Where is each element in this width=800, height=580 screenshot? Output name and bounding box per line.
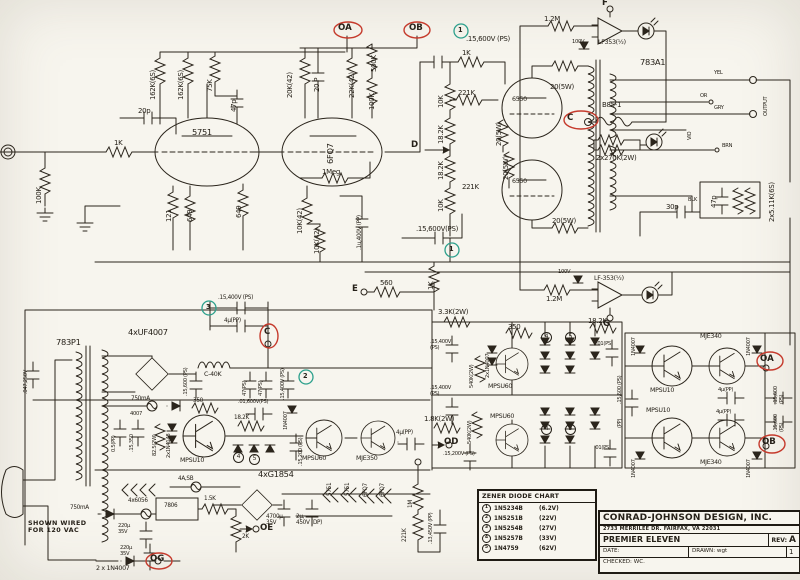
schematic-linework (0, 0, 800, 580)
cap-15-400-label: .15,400V (PS) (430, 340, 451, 351)
tap-brn-label: BRN (722, 144, 732, 150)
cap-220u-label: 220μ 35V (118, 524, 130, 535)
tap-yel-label: YEL (714, 71, 722, 77)
green-ref-circles (202, 24, 468, 384)
coupling-cap-label: .15,600V (PS) (466, 36, 510, 44)
cap-4700u-label: 4700μ 35V (266, 514, 283, 526)
zener-chart-row: 5 1N4759 (62V) (479, 543, 595, 553)
resistor-162k-label: 162K(6S) (150, 70, 158, 100)
resistor-1.2m-label: 1.2M (546, 296, 562, 304)
cap-01-label: .01(PS) (594, 446, 611, 452)
cap-20p-label: 20 P (314, 78, 322, 92)
resistor-221k-label: 221K (462, 184, 479, 192)
resistor-18.2k-label: 18.2K (438, 125, 446, 144)
transistor-mpsu60-label: MPSU60 (302, 456, 326, 463)
drawn-cell: DRAWN: wgt (688, 547, 786, 557)
zener-chart-row: 2 1N5251B (22V) (479, 513, 595, 523)
zener-ref-5: 5 (565, 424, 576, 435)
transistor-mpsu10-label: MPSU10 (646, 408, 670, 415)
resistor-1.5k-label: 1.5K (204, 496, 216, 502)
transistor-mje340-label: MJE340 (700, 334, 722, 341)
cap-4u-label: 4μ(PP) (716, 410, 731, 416)
diode-1n4007-label: 1N4007 (284, 411, 290, 430)
resistor-10k-label: 10K(42) (297, 208, 305, 234)
cap-15-600-label: .15,600 (PS) (774, 414, 785, 432)
cap-15-400-label: .15,400V (PS) (281, 368, 287, 400)
diode-1n4007-label: 1N4007 (632, 459, 638, 478)
transistor-mpsu10-label: MPSU10 (180, 458, 204, 465)
zener-ref-5: 5 (565, 332, 576, 343)
cap-05-label: 0.5(PP) (112, 436, 118, 452)
cap-47-label: 47(PS) (259, 381, 265, 396)
resistor-18.2k-label: 18.2K (438, 161, 446, 180)
resistor-82.5-label: 82.5(2W) (153, 434, 159, 456)
resistor-20-5w-label: 20(5W) (496, 122, 504, 146)
zener-voltage: (33V) (539, 536, 557, 542)
resistor-20-5w-label: 20(5W) (552, 218, 576, 226)
resistor-22k-label: 22K(42) (349, 72, 357, 98)
terminal-e: E (352, 285, 358, 294)
zener-ref-icon: 5 (482, 544, 491, 553)
diode-4007-label: 4007 (130, 412, 142, 418)
lamp-b85-1-label: B85-1 (602, 102, 621, 110)
servo-circuit (361, 6, 672, 321)
tap-or-label: OR (700, 94, 707, 100)
tube-6550-label: 6550 (512, 179, 527, 186)
model-name: PREMIER ELEVEN (600, 534, 768, 546)
zener-chart-row: 4 1N5257B (33V) (479, 533, 595, 543)
cap-2u-label: 2μ, 450V (DP) (296, 514, 322, 526)
cap-47p-label: 47p (231, 100, 239, 112)
transistor-mpsu10-label: MPSU10 (650, 388, 674, 395)
zener-ref-icon: 3 (482, 524, 491, 533)
resistor-100k-label: 100K (36, 187, 44, 204)
fuse-750ma-label: 750mA (70, 505, 89, 511)
cap-4u-label: 4μ(PP) (224, 318, 241, 324)
diode-4148-label: 2x1N4148 (167, 434, 173, 458)
zener-chart-row: 1 1N5234B (6.2V) (479, 503, 595, 513)
checked-value: WC. (634, 559, 645, 565)
zener-chart-title: ZENER DIODE CHART (479, 491, 595, 503)
terminal-a-top: OA (338, 24, 352, 33)
resistor-75k-label: 75K (207, 79, 215, 92)
checked-label: CHECKED: (603, 559, 632, 565)
heater-6fq7-label: 6FQ7 (363, 483, 369, 497)
transformer-783a1-label: 783A1 (640, 58, 665, 67)
resistor-18.2k-label: 18.2K (234, 415, 249, 421)
zener-chart-row: 3 1N5254B (27V) (479, 523, 595, 533)
resistor-270k-label: 2x270K(2W) (596, 155, 636, 163)
terminal-c: C (567, 114, 573, 123)
resistor-1.8k-label: 1.8K(2W) (424, 416, 454, 424)
heater-6fq7-label: 6FQ7 (380, 483, 386, 497)
opamp-lf353-label: LF353(½) (598, 40, 626, 47)
zener-ref-4: 4 (541, 332, 552, 343)
zener-part: 1N4759 (494, 546, 536, 552)
resistor-1meg-label: 1Meg (322, 169, 340, 177)
terminal-a-right: OA (760, 355, 774, 364)
cap-01-label: .01(PS) (596, 342, 613, 348)
cap-15-600-label: .15,600 (PS) (774, 386, 785, 404)
sheet-cell: 1 (786, 547, 799, 557)
resistor-10k-label: 10K (438, 199, 446, 212)
rev-cell: REV: A (768, 534, 799, 546)
zener-ref-4: 4 (541, 424, 552, 435)
zener-part: 1N5234B (494, 506, 536, 512)
cap-15-200-label: .15,200V (PS) (443, 452, 475, 458)
rev-label: REV: (772, 537, 788, 544)
transistor-mje350-label: MJE350 (356, 456, 378, 463)
date-drawn-row: DATE: DRAWN: wgt 1 (600, 547, 799, 558)
zener-part: 1N5251B (494, 516, 536, 522)
diode-2x1n4007-label: 2x1N4007 (486, 354, 492, 378)
tap-vio-label: VIO (688, 132, 694, 140)
zener-voltage: (27V) (539, 526, 557, 532)
tube-6fq7-label: 6FQ7 (326, 143, 335, 164)
cap-220u-label: 220μ 35V (120, 546, 132, 557)
circled-ref-1: 1 (458, 27, 463, 34)
cap-0.1u-label: .1u,400V (PP) (357, 215, 363, 250)
zener-voltage: (22V) (539, 516, 557, 522)
wiring-note: SHOWN WIRED FOR 120 VAC (28, 520, 86, 534)
zener-ref-4: 4 (233, 452, 244, 463)
resistor-3.3k-label: 3.3K(2W) (438, 309, 468, 317)
diode-100v-label: 100V (558, 270, 570, 276)
winding-4x6056-label: 4x6056 (128, 498, 148, 504)
zener-voltage: (6.2V) (539, 506, 559, 512)
resistor-649-label: 649 (187, 210, 195, 222)
tube-5751-label: 5751 (192, 128, 212, 137)
cap-47-label: 47(PS) (243, 381, 249, 396)
cap-47p-label: 47p (711, 196, 719, 208)
resistor-20-5w-label: 20(5W) (550, 84, 574, 92)
fuse-750ma-label: 750mA (131, 396, 150, 402)
transistor-mpsu60-label: MPSU60 (488, 384, 512, 391)
resistor-649-label: 649 (236, 206, 244, 218)
cap-15-400-label: .15,400V (PS) (430, 386, 451, 397)
drawn-value: wgt (717, 548, 727, 554)
cap-20p-label: 20p (138, 108, 150, 116)
cap-047-label: .047,250V (24, 370, 30, 394)
diode-1n4007-label: 1N4007 (632, 337, 638, 356)
cap-30p-label: 30p (666, 204, 678, 212)
resistor-1.2m-label: 1.2M (544, 16, 560, 24)
resistor-350-label: 350 (193, 398, 203, 404)
coupling-cap-label: .15,600V(PS) (416, 226, 458, 234)
rev-value: A (789, 535, 796, 545)
regulator-7806-label: 7806 (164, 503, 177, 509)
terminal-b-right: OB (762, 438, 776, 447)
terminal-d: D (411, 141, 418, 150)
resistor-350-label: 350 (508, 324, 520, 332)
resistor-560-label: 560 (380, 280, 392, 288)
resistor-162k-label: 162K(6S) (178, 70, 186, 100)
output-jack-label: OUTPUT (764, 97, 770, 116)
terminal-d-low: OD (444, 438, 458, 447)
pot-2k-label: 2K (242, 534, 249, 540)
transformer-783p1-label: 783P1 (56, 338, 81, 347)
checked-row: CHECKED: WC. (600, 558, 799, 566)
cap-01-600-label: .01,600V(PS) (238, 400, 268, 406)
transistor-mpsu60-label: MPSU60 (490, 414, 514, 421)
fuse-4a-label: 4A,SB (178, 476, 193, 482)
heater-5751-label: 5751 (327, 483, 333, 496)
zener-ref-5: 5 (249, 454, 260, 465)
diode-2x1n4007-label: 2 x 1N4007 (96, 566, 129, 573)
resistor-1m-label: 1M (408, 500, 414, 508)
resistor-221k-label: 221K (458, 90, 475, 98)
terminal-g-low: OG (150, 555, 164, 564)
company-address: 2733 MERRILEE DR. FAIRFAX, VA 22031 (600, 526, 799, 534)
resistor-221k-label: 221K (402, 529, 408, 542)
resistor-5.11k-label: 2x5.11K(6S) (769, 182, 777, 222)
heater-5751-label: 5751 (345, 483, 351, 496)
resistor-1k-label: 1K (462, 50, 470, 58)
resistor-1k-label: 1K (114, 140, 122, 148)
zener-ref-icon: 1 (482, 504, 491, 513)
cap-4u-label: 4μ(PP) (396, 430, 413, 436)
drawn-label: DRAWN: (692, 548, 715, 554)
opamp-lf353-label: LF-353(½) (594, 276, 624, 283)
circled-ref-2: 2 (303, 373, 308, 380)
schematic-scan: 20p 162K(6S) 162K(6S) 75K 47p 5751 1K 10… (0, 0, 800, 580)
choke-c40k-label: C-40K (204, 372, 221, 379)
date-cell: DATE: (600, 547, 688, 557)
cap-15-350-label: .15,350 (130, 434, 136, 452)
resistor-10k-label: 10K (438, 95, 446, 108)
cap-pp-label: (PP) (618, 419, 624, 428)
terminal-c-psu: C (264, 328, 270, 337)
resistor-1k-label: 1K (428, 282, 436, 290)
cap-13-450-label: .13,450V (PP) (429, 513, 435, 544)
resistor-121-label: 121 (166, 210, 174, 222)
tube-6550-label: 6550 (512, 97, 527, 104)
pot-500k-label: 500K (371, 55, 379, 72)
tap-gry-label: GRY (714, 106, 724, 112)
cap-4u-label: 4μ(PP) (718, 388, 733, 394)
resistor-540k-label: 540K(2W) (468, 421, 474, 444)
title-block: CONRAD-JOHNSON DESIGN, INC. 2733 MERRILE… (598, 510, 800, 574)
company-name: CONRAD-JOHNSON DESIGN, INC. (600, 512, 799, 526)
bridge-uf4007-label: 4xUF4007 (128, 328, 168, 337)
model-row: PREMIER ELEVEN REV: A (600, 534, 799, 547)
cap-15-600-label: .15,600 (PS) (618, 376, 624, 404)
circled-ref-3: 3 (206, 304, 211, 311)
cap-15-400-label: .15,400V (PS) (218, 295, 253, 301)
terminal-f: F (602, 0, 608, 8)
resistor-10k-label: 10K(42) (314, 228, 322, 254)
zener-part: 1N5254B (494, 526, 536, 532)
resistor-18.2k-label: 18.2K (588, 318, 607, 326)
zener-voltage: (62V) (539, 546, 557, 552)
tap-blk-label: BLK (688, 198, 697, 204)
zener-ref-icon: 4 (482, 534, 491, 543)
resistor-540k-label: 540K(2W) (470, 365, 476, 388)
zener-part: 1N5257B (494, 536, 536, 542)
zener-ref-icon: 2 (482, 514, 491, 523)
circled-ref-1: 1 (449, 246, 454, 253)
cap-15-600-label: .15,600 (PS) (184, 368, 190, 396)
resistor-20-5w-label: 20(5W) (503, 156, 511, 180)
diode-1n4007-label: 1N4007 (747, 459, 753, 478)
resistor-100k-label: 100K (369, 93, 377, 110)
diode-1n4007-label: 1N4007 (747, 337, 753, 356)
transistor-mje340-label: MJE340 (700, 460, 722, 467)
bridge-g1854-label: 4xG1854 (258, 470, 294, 479)
resistor-20k-label: 20K(42) (287, 72, 295, 98)
terminal-b-top: OB (409, 24, 423, 33)
diode-100v-label: 100V (572, 40, 584, 46)
zener-diode-chart: ZENER DIODE CHART 1 1N5234B (6.2V) 2 1N5… (477, 489, 597, 561)
